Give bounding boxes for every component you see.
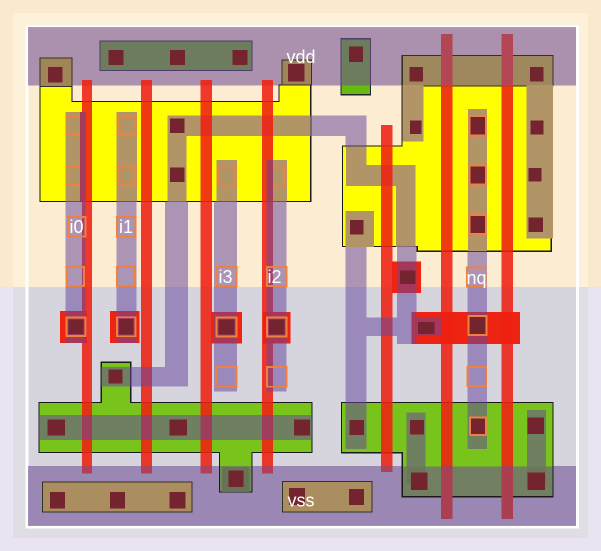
svg-text:i1: i1 — [119, 217, 133, 237]
svg-text:i3: i3 — [219, 267, 233, 287]
svg-text:vss: vss — [288, 491, 315, 511]
svg-text:nq: nq — [467, 268, 487, 288]
svg-text:i2: i2 — [268, 267, 282, 287]
svg-text:i0: i0 — [70, 217, 84, 237]
svg-text:vdd: vdd — [287, 47, 316, 67]
